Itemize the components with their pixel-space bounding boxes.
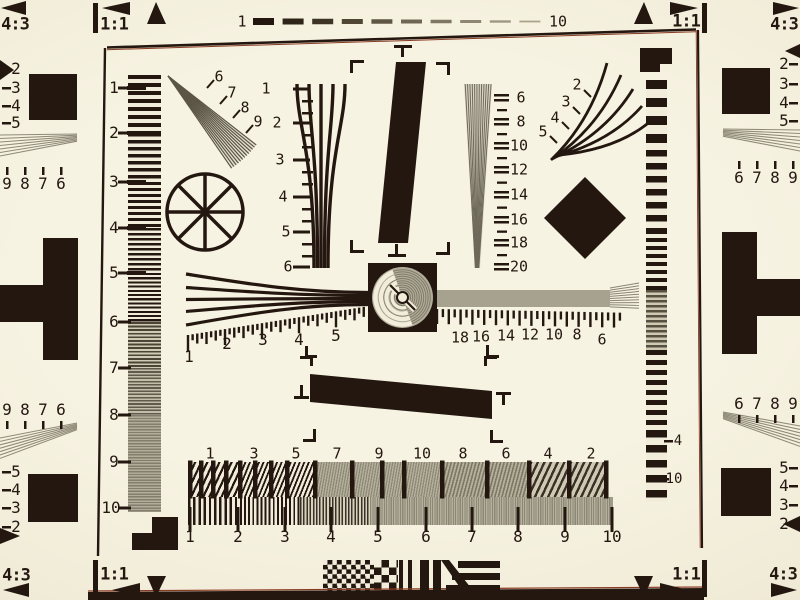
digit-label: 4 [109,220,119,236]
digit-label: 5 [281,225,290,240]
digit-label: 5 [331,328,341,344]
digit-label: 6 [214,70,223,85]
digit-label: 2 [572,78,581,93]
digit-label: 5 [538,125,547,140]
digit-label: 4 [294,332,304,348]
digit-label: 1 [185,529,195,545]
aspect-label-11: 1:1 [100,17,128,34]
digit-label: 2 [779,516,789,532]
digit-label: 8 [513,529,523,545]
aspect-label-11: 1:1 [672,14,700,31]
aspect-label-43: 4:3 [770,17,798,34]
digit-label: 7 [227,86,236,101]
digit-label: 3 [249,447,258,462]
digit-label: 9 [109,454,119,470]
digit-label: 18 [510,236,528,251]
digit-label: 10 [602,529,621,545]
digit-label: 10 [549,15,567,30]
digit-label: 9 [788,396,798,412]
digit-label: 8 [109,407,119,423]
digit-label: 9 [560,529,570,545]
digit-label: 18 [451,331,469,346]
digit-label: 12 [510,163,528,178]
digit-label: 1 [205,447,214,462]
digit-label: 4 [11,482,21,498]
digit-label: 10 [510,139,528,154]
digit-label: 7 [467,529,477,545]
digit-label: 3 [11,80,21,96]
digit-label: 16 [510,213,528,228]
digit-label: 4 [550,111,559,126]
aspect-label-43: 4:3 [2,568,30,585]
digit-label: 8 [20,402,30,418]
digit-label: 5 [291,447,300,462]
digit-label: 2 [272,116,281,131]
digit-label: 6 [734,396,744,412]
digit-label: 6 [501,447,510,462]
digit-label: 5 [11,115,21,131]
digit-label: 8 [516,115,525,130]
digit-label: 2 [109,125,119,141]
digit-label: 3 [779,497,789,513]
digit-label: 9 [788,170,798,186]
digit-label: 9 [253,115,262,130]
digit-label: 6 [56,176,66,192]
digit-label: 10 [666,472,683,486]
aspect-label-43: 4:3 [1,17,29,34]
test-chart-photo: 4:3 1:1 1:1 4:3 4:3 1:1 1:1 4:3 11012345… [0,0,800,600]
digit-label: 3 [280,529,290,545]
digit-label: 1 [109,80,119,96]
digit-label: 7 [752,170,762,186]
digit-label: 9 [374,447,383,462]
digit-label: 2 [779,56,789,72]
digit-label: 8 [20,176,30,192]
digit-label: 20 [510,260,528,275]
digit-label: 6 [421,529,431,545]
digit-label: 3 [109,174,119,190]
digit-label: 6 [734,170,744,186]
digit-label: 6 [109,314,119,330]
digit-label: 8 [240,101,249,116]
digit-label: 7 [38,402,48,418]
digit-label: 12 [521,328,539,343]
digit-label: 2 [233,529,243,545]
digit-label: 3 [11,500,21,516]
digit-label: 2 [11,519,21,535]
digit-label: 4 [11,98,21,114]
digit-label: 3 [779,76,789,92]
digit-label: 4 [543,447,552,462]
digit-label: 1 [184,349,194,365]
digit-label: 5 [779,460,789,476]
digit-label: 3 [258,332,268,348]
aspect-label-43: 4:3 [769,567,797,584]
digit-label: 14 [497,329,515,344]
digit-label: 14 [510,188,528,203]
digit-label: 6 [597,333,606,348]
digit-label: 9 [2,176,12,192]
digit-label: 4 [779,95,789,111]
digit-label: 7 [332,447,341,462]
digit-label: 5 [109,265,119,281]
digit-label: 3 [561,95,570,110]
digit-label: 10 [101,500,120,516]
digit-label: 6 [283,260,292,275]
aspect-label-11: 1:1 [672,567,700,584]
digit-label: 10 [545,328,563,343]
digit-label: 1 [261,82,270,97]
digit-label: 2 [586,447,595,462]
digit-label: 4 [278,190,287,205]
digit-label: 1 [237,15,246,30]
digit-label: 4 [674,434,682,448]
digit-label: 7 [752,396,762,412]
digit-label: 7 [109,360,119,376]
digit-label: 10 [413,447,431,462]
digit-label: 3 [275,153,284,168]
digit-label: 5 [779,113,789,129]
digit-label: 4 [779,478,789,494]
digit-label: 9 [2,402,12,418]
digit-label: 2 [222,336,232,352]
digit-label: 5 [373,529,383,545]
digit-label: 5 [11,464,21,480]
digit-label: 2 [11,61,21,77]
digit-label: 8 [770,396,780,412]
digit-label: 16 [472,330,490,345]
digit-label: 8 [458,447,467,462]
aspect-label-11: 1:1 [100,567,128,584]
digit-label: 8 [572,328,581,343]
digit-label: 7 [38,176,48,192]
digit-label: 6 [56,402,66,418]
digit-label: 8 [770,170,780,186]
digit-label: 4 [326,529,336,545]
label-layer: 4:3 1:1 1:1 4:3 4:3 1:1 1:1 4:3 11012345… [0,0,800,600]
digit-label: 6 [516,91,525,106]
